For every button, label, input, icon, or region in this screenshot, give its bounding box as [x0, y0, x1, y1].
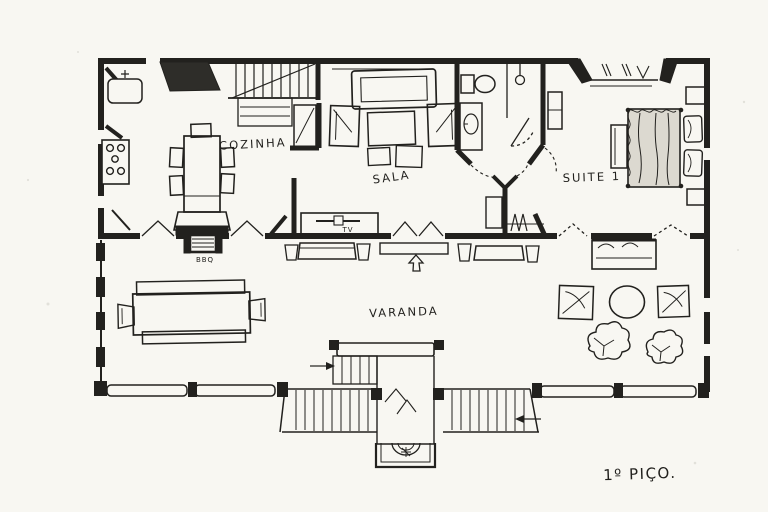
annotation-bbq: BBQ [196, 256, 214, 264]
bbq-grill [176, 226, 228, 253]
plan-title: 1º PIÇO. [603, 464, 677, 485]
room-label-varanda: VARANDA [369, 304, 439, 320]
room-label-suite-1: SUITE 1 [562, 169, 621, 185]
door-leaf [486, 197, 502, 228]
stove [102, 140, 129, 184]
fridge [294, 105, 316, 147]
floor-plan-drawing: COZINHA SALA SUITE 1 VARANDA BBQ TV 1º P… [0, 0, 768, 512]
annotation-tv: TV [341, 226, 353, 234]
floor-plan-sheet: COZINHA SALA SUITE 1 VARANDA BBQ TV 1º P… [0, 0, 768, 512]
